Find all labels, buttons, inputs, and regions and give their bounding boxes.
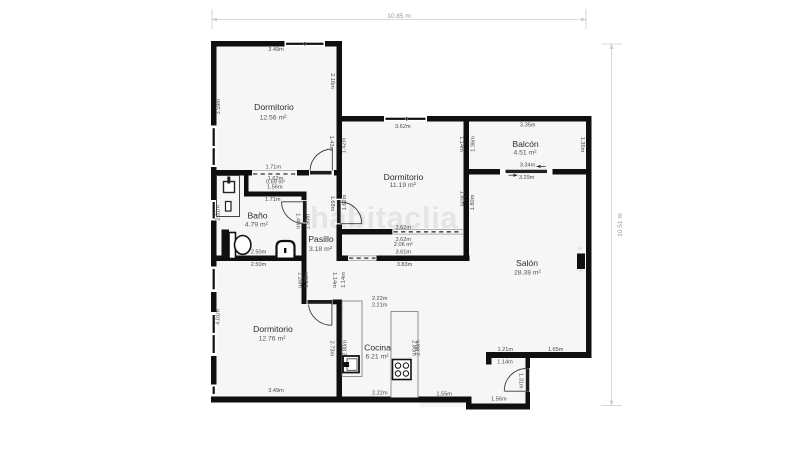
svg-text:1.62m: 1.62m xyxy=(342,194,348,210)
svg-text:3.49m: 3.49m xyxy=(268,388,284,394)
svg-text:28.38 m²: 28.38 m² xyxy=(514,269,542,276)
svg-text:2.80m: 2.80m xyxy=(343,340,349,356)
svg-text:3.62m: 3.62m xyxy=(396,225,412,231)
svg-text:1.42m: 1.42m xyxy=(341,137,347,153)
svg-text:Pasillo: Pasillo xyxy=(308,234,334,244)
svg-text:1.40m: 1.40m xyxy=(294,213,300,229)
svg-text:2.50m: 2.50m xyxy=(251,249,267,255)
svg-text:1.65m: 1.65m xyxy=(548,347,564,353)
svg-text:3.18 m²: 3.18 m² xyxy=(309,246,333,253)
svg-text:1.31m: 1.31m xyxy=(517,373,523,389)
svg-text:4.01m: 4.01m xyxy=(216,309,222,325)
svg-text:2.16m: 2.16m xyxy=(329,73,335,89)
svg-text:4.51 m²: 4.51 m² xyxy=(513,150,537,157)
svg-text:10.85 m: 10.85 m xyxy=(387,13,411,20)
svg-text:1.55m: 1.55m xyxy=(436,392,452,398)
svg-text:2.80m: 2.80m xyxy=(416,340,422,356)
svg-text:1.21m: 1.21m xyxy=(498,347,514,353)
svg-text:1.80m: 1.80m xyxy=(306,214,312,230)
svg-text:2.06 m²: 2.06 m² xyxy=(394,242,413,248)
svg-text:3.62m: 3.62m xyxy=(395,124,411,130)
svg-text:2.50m: 2.50m xyxy=(251,262,267,268)
svg-text:4.79 m²: 4.79 m² xyxy=(245,222,269,229)
svg-text:6.21 m²: 6.21 m² xyxy=(365,354,389,361)
svg-text:1.14m: 1.14m xyxy=(497,360,513,366)
svg-text:Salón: Salón xyxy=(516,258,538,268)
svg-text:Balcón: Balcón xyxy=(512,139,538,149)
svg-text:11.19 m²: 11.19 m² xyxy=(390,182,417,189)
svg-text:12.76 m²: 12.76 m² xyxy=(259,336,287,343)
svg-text:1.68m: 1.68m xyxy=(329,196,335,212)
svg-text:1.14m: 1.14m xyxy=(331,272,337,288)
svg-text:2.22m: 2.22m xyxy=(372,296,388,302)
svg-text:Dormitorio: Dormitorio xyxy=(384,172,424,182)
svg-text:Dormitorio: Dormitorio xyxy=(253,324,293,334)
svg-text:12.56 m²: 12.56 m² xyxy=(260,115,288,122)
svg-text:2.73m: 2.73m xyxy=(329,341,335,357)
svg-text:3.83m: 3.83m xyxy=(397,262,413,268)
svg-text:10.51 m: 10.51 m xyxy=(617,213,624,237)
svg-text:1.56m: 1.56m xyxy=(491,396,507,402)
svg-text:1.56m: 1.56m xyxy=(267,185,283,191)
svg-text:Baño: Baño xyxy=(247,211,267,221)
svg-text:3.59m: 3.59m xyxy=(216,99,222,115)
svg-text:2.31m: 2.31m xyxy=(216,205,222,221)
svg-text:2.22m: 2.22m xyxy=(372,391,388,397)
svg-text:1.28m: 1.28m xyxy=(297,272,303,288)
svg-text:3.29m: 3.29m xyxy=(519,175,535,181)
svg-text:1.28m: 1.28m xyxy=(304,272,310,288)
svg-text:1.14m: 1.14m xyxy=(341,272,347,288)
svg-text:1.43m: 1.43m xyxy=(328,136,334,152)
svg-text:1.80m: 1.80m xyxy=(470,194,476,210)
svg-text:1.71m: 1.71m xyxy=(265,197,281,203)
svg-text:3.49m: 3.49m xyxy=(268,47,284,53)
svg-text:2.21m: 2.21m xyxy=(372,302,388,308)
svg-text:1.36m: 1.36m xyxy=(470,136,476,152)
svg-text:1.35m: 1.35m xyxy=(579,137,585,153)
svg-text:1.71m: 1.71m xyxy=(266,164,282,170)
svg-text:Cocina: Cocina xyxy=(364,343,391,353)
svg-text:1.80m: 1.80m xyxy=(459,191,465,207)
svg-text:3.61m: 3.61m xyxy=(396,250,412,256)
svg-text:3.35m: 3.35m xyxy=(520,123,536,129)
svg-text:1.14m: 1.14m xyxy=(458,136,464,152)
svg-text:3.34m: 3.34m xyxy=(520,163,536,169)
svg-text:Dormitorio: Dormitorio xyxy=(254,102,294,112)
